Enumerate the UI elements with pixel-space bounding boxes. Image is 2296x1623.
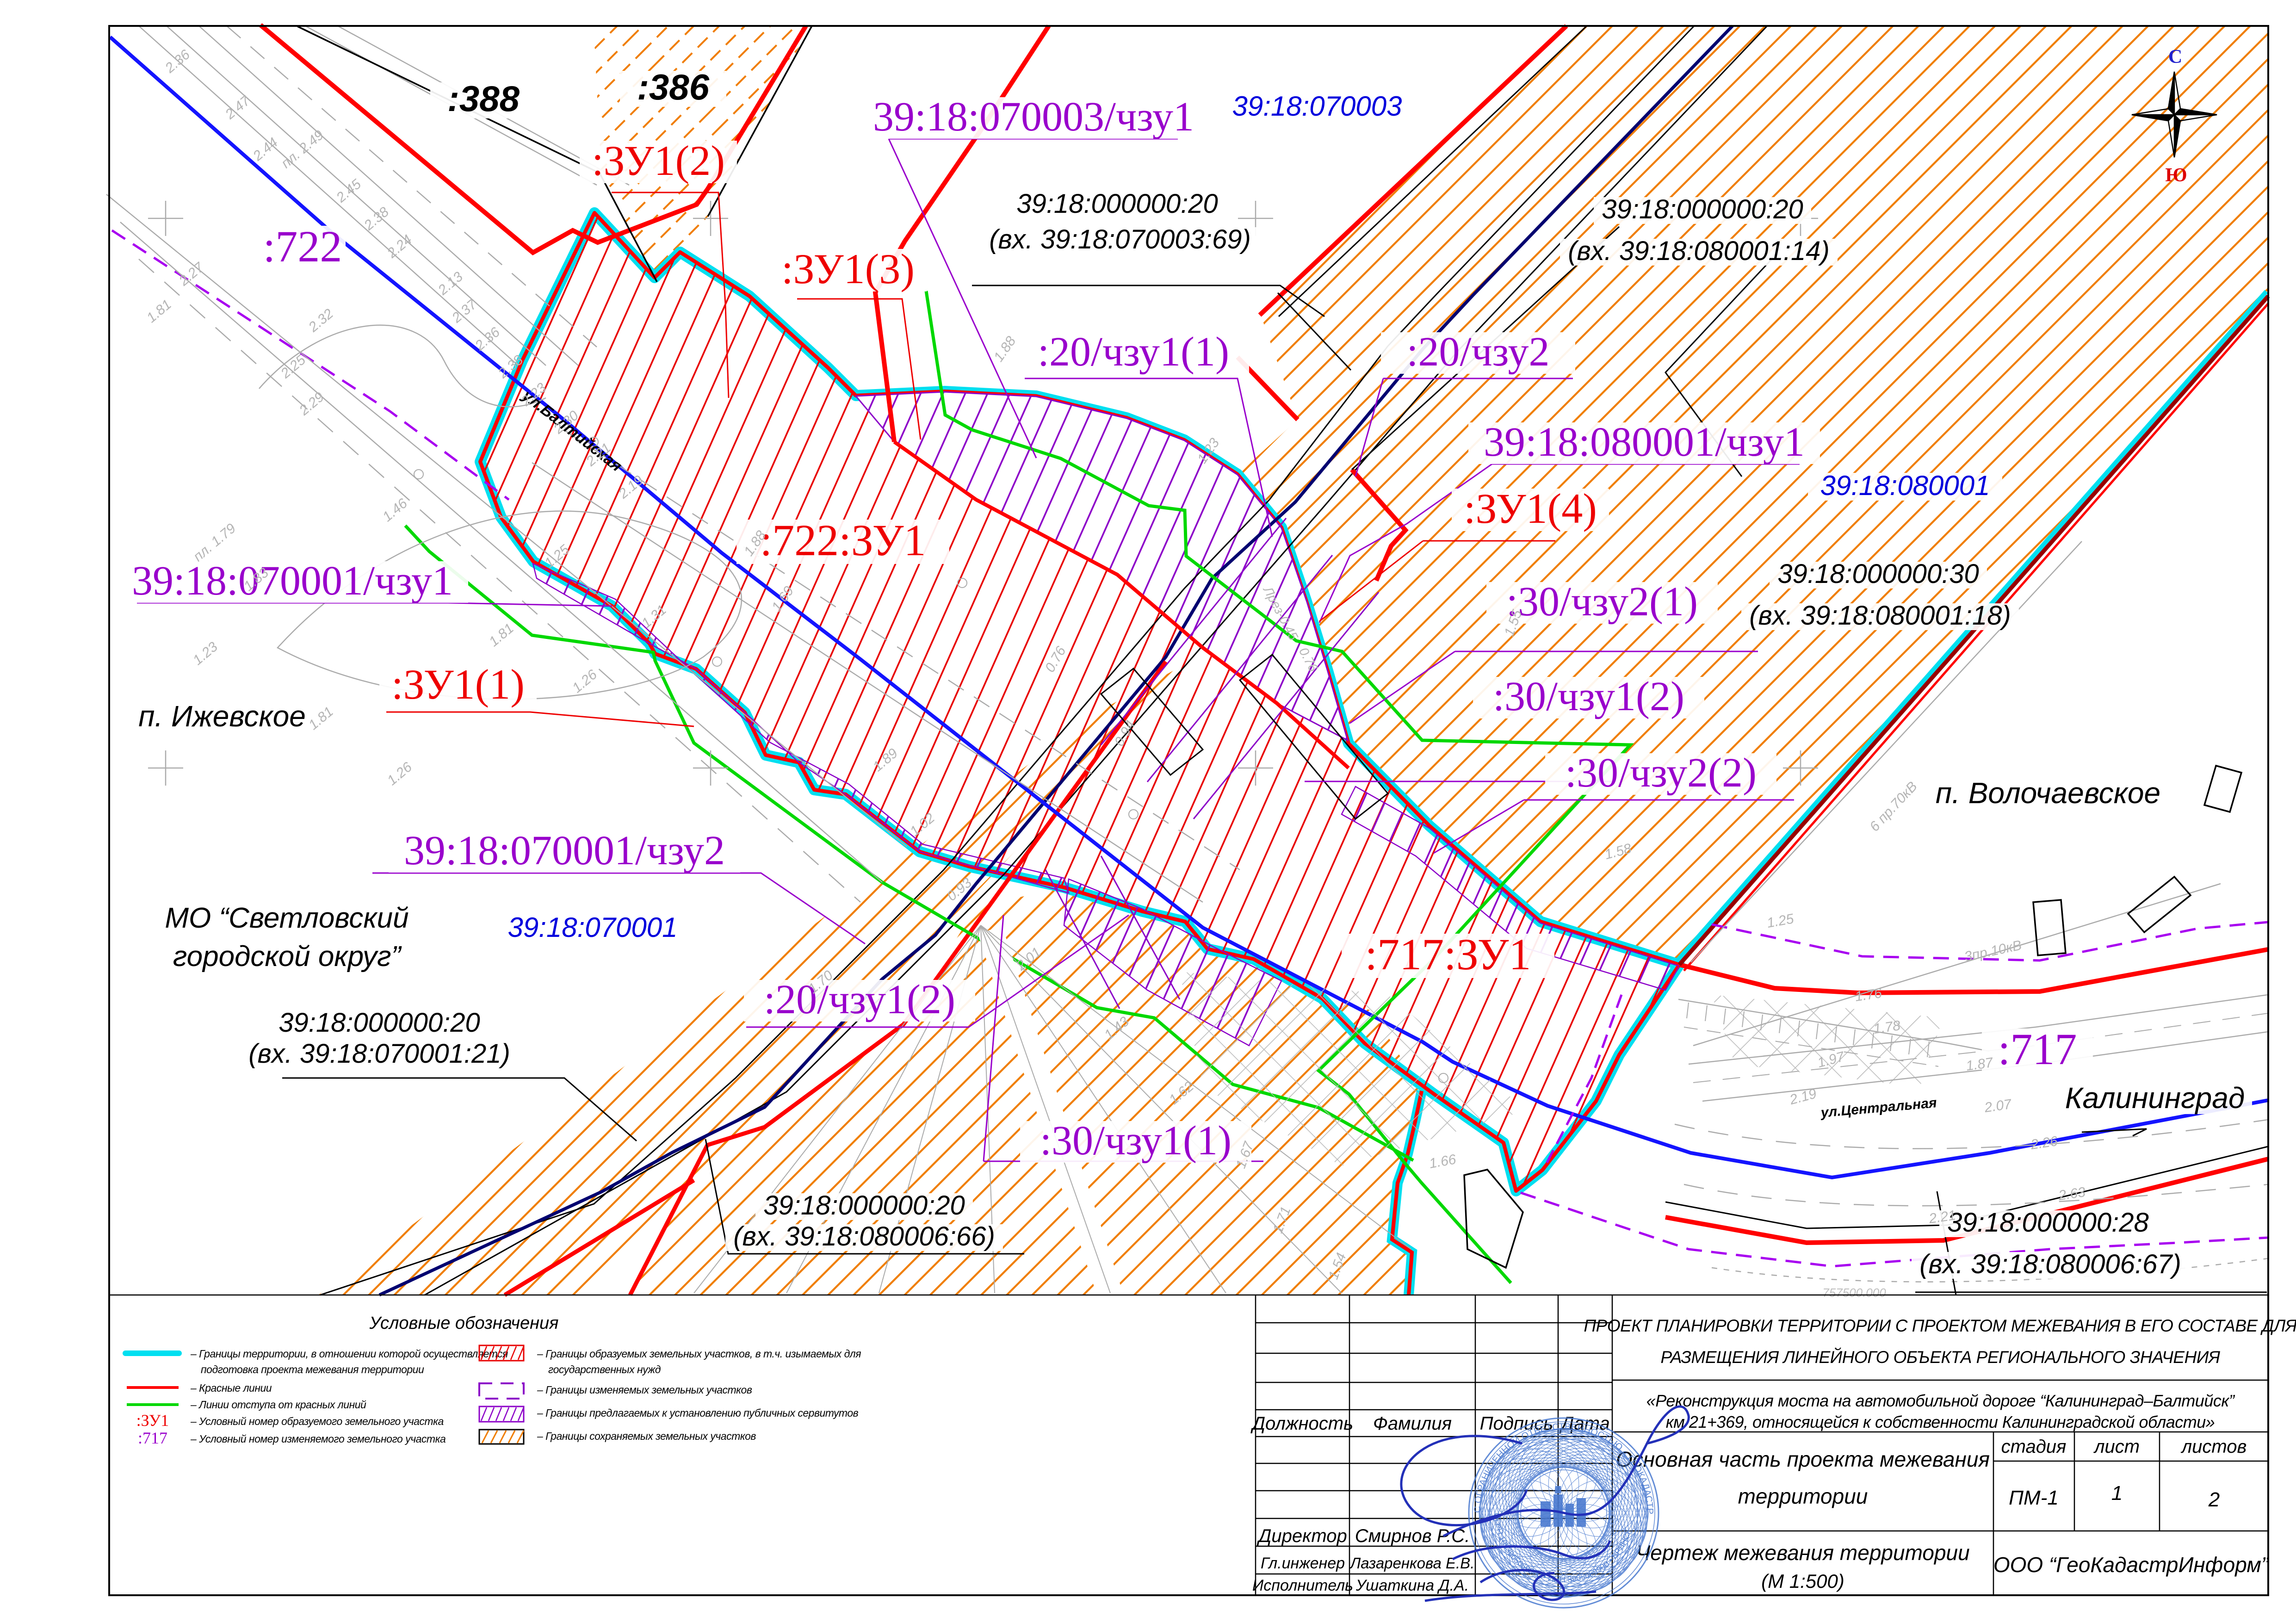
svg-text::388: :388 xyxy=(447,78,520,119)
svg-text::20/чзу1(2): :20/чзу1(2) xyxy=(764,977,955,1022)
svg-text:Исполнитель: Исполнитель xyxy=(1252,1577,1353,1594)
svg-text:Директор: Директор xyxy=(1256,1526,1347,1546)
svg-text:39:18:070001/чзу2: 39:18:070001/чзу2 xyxy=(404,828,725,873)
svg-text:С: С xyxy=(2168,46,2182,68)
svg-text:– Границы территории, в отнош: – Границы территории, в отношении которо… xyxy=(190,1348,508,1360)
svg-text:п. Ижевское: п. Ижевское xyxy=(138,700,306,733)
svg-text:МО “Светловский: МО “Светловский xyxy=(165,902,408,934)
svg-text:Ю: Ю xyxy=(2165,165,2187,186)
svg-text:ПМ-1: ПМ-1 xyxy=(2009,1487,2059,1509)
svg-text:Чертеж межевания территории: Чертеж межевания территории xyxy=(1636,1541,1969,1565)
svg-text::ЗУ1(4): :ЗУ1(4) xyxy=(1464,485,1597,532)
svg-text:Должность: Должность xyxy=(1250,1413,1353,1434)
svg-text::717: :717 xyxy=(1998,1024,2077,1074)
svg-text:Ушаткина Д.А.: Ушаткина Д.А. xyxy=(1355,1577,1469,1594)
svg-text:39:18:080001: 39:18:080001 xyxy=(1820,470,1990,501)
svg-text:39:18:000000:28: 39:18:000000:28 xyxy=(1947,1208,2148,1238)
svg-text:– Границы предлагаемых к уста: – Границы предлагаемых к установлению пу… xyxy=(537,1407,859,1419)
svg-text:– Условный номер образуемого: – Условный номер образуемого земельного … xyxy=(190,1415,444,1427)
svg-text:«Реконструкция моста на автомо: «Реконструкция моста на автомобильной до… xyxy=(1646,1391,2235,1410)
svg-text:Основная часть проекта межеван: Основная часть проекта межевания xyxy=(1616,1447,1990,1471)
svg-text:РАЗМЕЩЕНИЯ ЛИНЕЙНОГО ОБЪЕКТА Р: РАЗМЕЩЕНИЯ ЛИНЕЙНОГО ОБЪЕКТА РЕГИОНАЛЬНО… xyxy=(1660,1347,2220,1367)
svg-text:39:18:070003: 39:18:070003 xyxy=(1232,91,1402,122)
svg-text:(вх. 39:18:080001:18): (вх. 39:18:080001:18) xyxy=(1749,601,2011,631)
svg-text::30/чзу2(1): :30/чзу2(1) xyxy=(1506,579,1698,625)
svg-text:(вх. 39:18:080006:67): (вх. 39:18:080006:67) xyxy=(1919,1249,2181,1279)
svg-text:ООО “ГеоКадастрИнформ”: ООО “ГеоКадастрИнформ” xyxy=(1993,1553,2270,1577)
svg-text:(вх. 39:18:070003:69): (вх. 39:18:070003:69) xyxy=(989,224,1251,254)
svg-text:39:18:070001/чзу1: 39:18:070001/чзу1 xyxy=(132,558,453,604)
svg-text:Гл.инженер: Гл.инженер xyxy=(1261,1555,1345,1572)
svg-text:757500.000: 757500.000 xyxy=(1822,1286,1886,1300)
svg-text:39:18:000000:20: 39:18:000000:20 xyxy=(1602,194,1803,224)
svg-text:39:18:070001: 39:18:070001 xyxy=(507,912,677,943)
svg-text:1: 1 xyxy=(2111,1482,2123,1505)
svg-text::20/чзу2: :20/чзу2 xyxy=(1407,329,1550,375)
svg-text:– Границы сохраняемых земельн: – Границы сохраняемых земельных участков xyxy=(537,1430,756,1442)
svg-text:городской округ”: городской округ” xyxy=(173,941,402,973)
svg-text:Фамилия: Фамилия xyxy=(1373,1413,1452,1434)
svg-text:лист: лист xyxy=(2093,1437,2140,1457)
svg-text:– Красные линии: – Красные линии xyxy=(190,1382,272,1394)
svg-text::717: :717 xyxy=(138,1429,167,1447)
svg-text::386: :386 xyxy=(637,67,710,107)
svg-text:(вх. 39:18:070001:21): (вх. 39:18:070001:21) xyxy=(248,1039,510,1069)
svg-text::30/чзу1(2): :30/чзу1(2) xyxy=(1493,674,1684,719)
svg-text::30/чзу1(1): :30/чзу1(1) xyxy=(1040,1118,1232,1164)
svg-text:2: 2 xyxy=(2208,1488,2220,1511)
svg-text:(М 1:500): (М 1:500) xyxy=(1761,1570,1844,1592)
svg-text:(вх. 39:18:080006:66): (вх. 39:18:080006:66) xyxy=(733,1221,995,1251)
svg-text:– Границы изменяемых земельны: – Границы изменяемых земельных участков xyxy=(537,1384,752,1396)
svg-text:км 21+369, относящейся к собст: км 21+369, относящейся к собственности К… xyxy=(1666,1412,2215,1431)
svg-text:территории: территории xyxy=(1738,1484,1868,1508)
svg-text::20/чзу1(1): :20/чзу1(1) xyxy=(1038,329,1229,375)
svg-text::717:ЗУ1: :717:ЗУ1 xyxy=(1365,929,1531,979)
svg-text:39:18:000000:20: 39:18:000000:20 xyxy=(763,1190,965,1220)
svg-text::ЗУ1(2): :ЗУ1(2) xyxy=(592,137,725,184)
svg-text:39:18:070003/чзу1: 39:18:070003/чзу1 xyxy=(873,94,1194,140)
svg-text:Смирнов Р.С.: Смирнов Р.С. xyxy=(1355,1526,1470,1546)
svg-text:стадия: стадия xyxy=(2001,1437,2067,1457)
svg-text::722: :722 xyxy=(263,222,342,271)
svg-text:подготовка проекта межевания т: подготовка проекта межевания территории xyxy=(201,1363,424,1375)
svg-text:(вх. 39:18:080001:14): (вх. 39:18:080001:14) xyxy=(1568,236,1830,266)
svg-text:– Границы образуемых земельны: – Границы образуемых земельных участков,… xyxy=(537,1348,861,1360)
svg-text:39:18:080001/чзу1: 39:18:080001/чзу1 xyxy=(1484,419,1805,465)
svg-text:Калининград: Калининград xyxy=(2065,1081,2245,1115)
svg-text:– Условный номер изменяемого: – Условный номер изменяемого земельного … xyxy=(190,1433,446,1445)
svg-text:государственных нужд: государственных нужд xyxy=(548,1363,661,1375)
svg-text::ЗУ1(3): :ЗУ1(3) xyxy=(781,245,915,292)
svg-text:39:18:000000:30: 39:18:000000:30 xyxy=(1777,559,1979,589)
svg-text:39:18:000000:20: 39:18:000000:20 xyxy=(278,1008,480,1038)
svg-text::ЗУ1: :ЗУ1 xyxy=(136,1411,169,1430)
svg-text:листов: листов xyxy=(2181,1437,2247,1457)
svg-text::722:ЗУ1: :722:ЗУ1 xyxy=(760,515,926,565)
svg-text:Условные обозначения: Условные обозначения xyxy=(369,1313,559,1333)
svg-text:ПРОЕКТ ПЛАНИРОВКИ ТЕРРИТОРИИ С: ПРОЕКТ ПЛАНИРОВКИ ТЕРРИТОРИИ С ПРОЕКТОМ … xyxy=(1584,1316,2296,1335)
svg-text:39:18:000000:20: 39:18:000000:20 xyxy=(1016,189,1218,219)
svg-text::ЗУ1(1): :ЗУ1(1) xyxy=(391,661,525,708)
svg-text:п. Волочаевское: п. Волочаевское xyxy=(1936,776,2160,810)
svg-text::30/чзу2(2): :30/чзу2(2) xyxy=(1565,750,1757,796)
svg-text:– Линии отступа от красных ли: – Линии отступа от красных линий xyxy=(190,1399,366,1411)
